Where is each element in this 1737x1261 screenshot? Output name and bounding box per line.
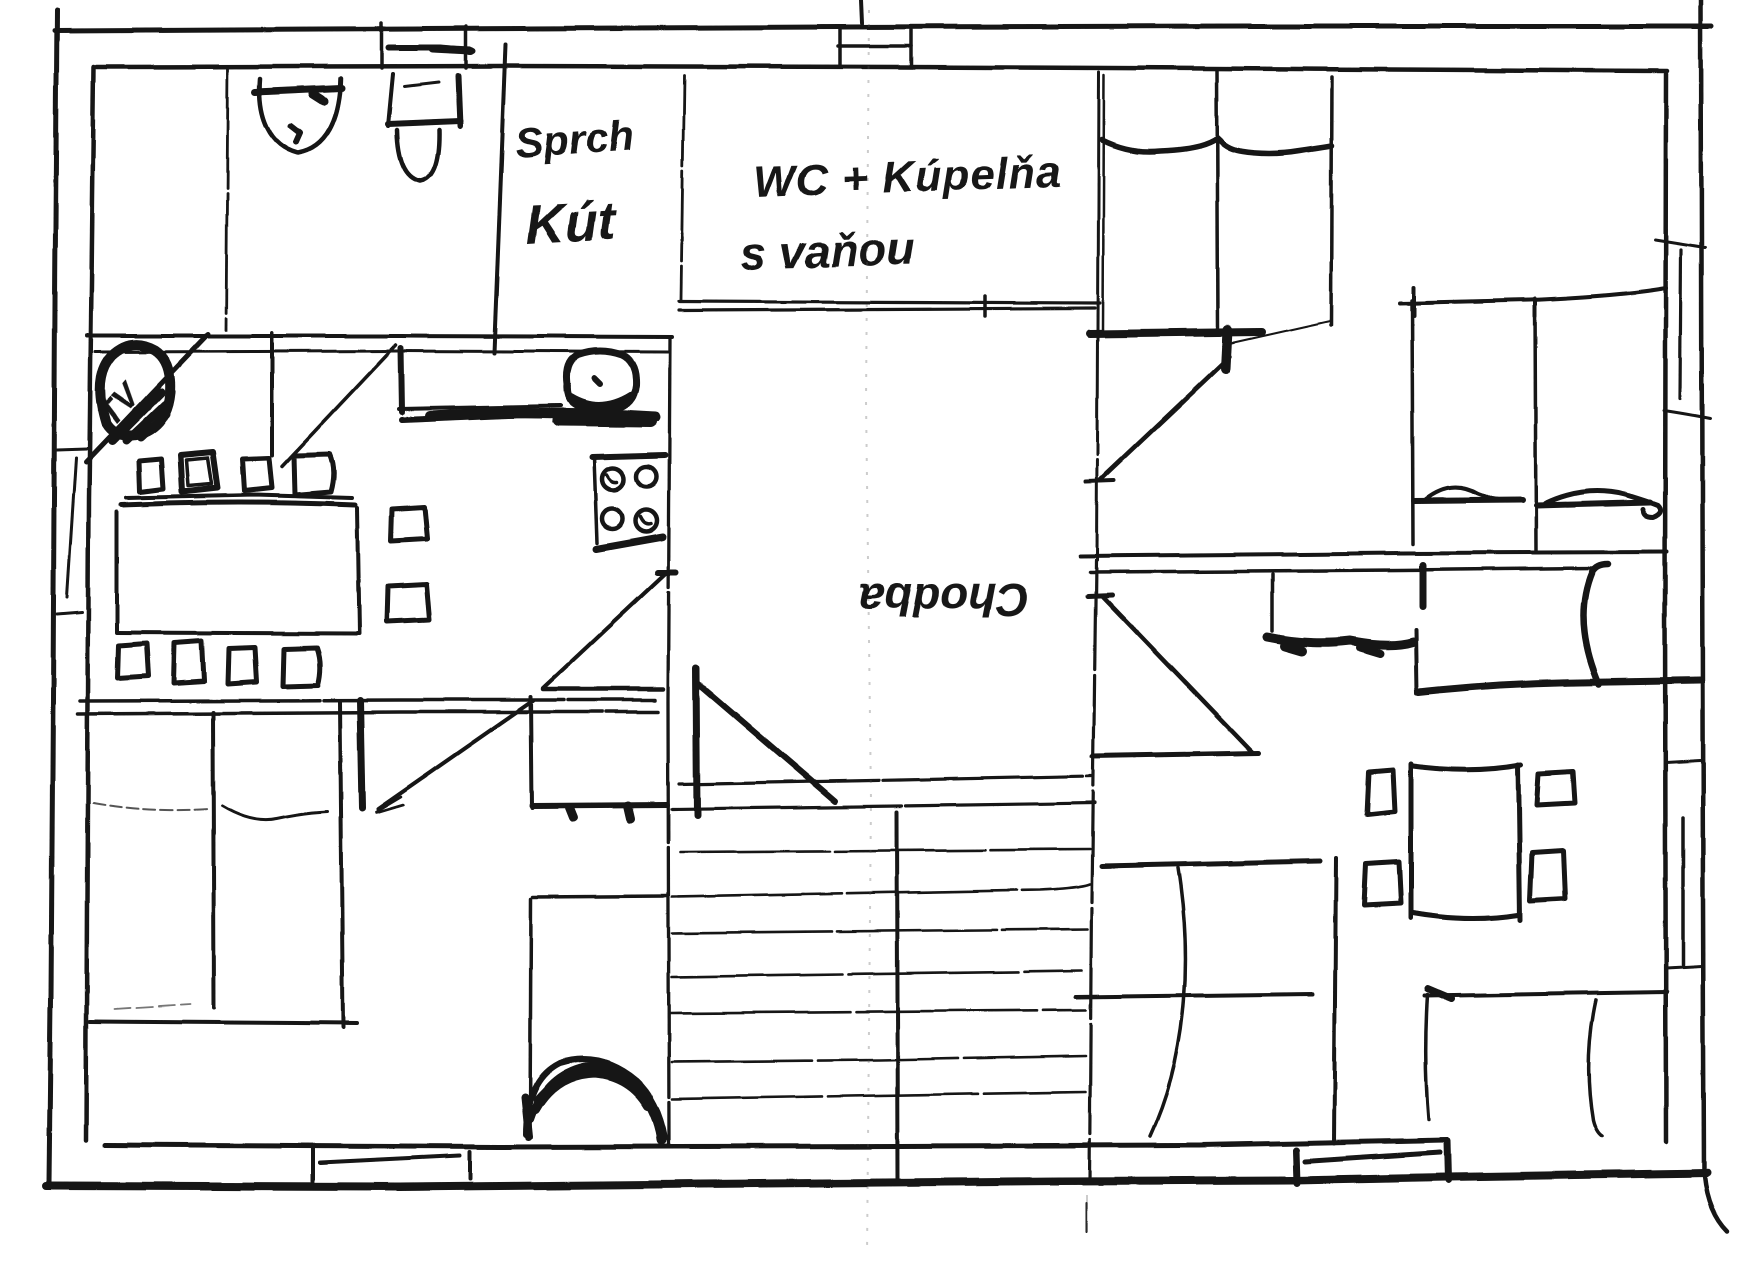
- svg-text:Chodba: Chodba: [858, 574, 1029, 626]
- svg-text:Sprch: Sprch: [513, 112, 635, 167]
- svg-text:s vaňou: s vaňou: [740, 222, 916, 280]
- svg-text:Kút: Kút: [524, 190, 619, 255]
